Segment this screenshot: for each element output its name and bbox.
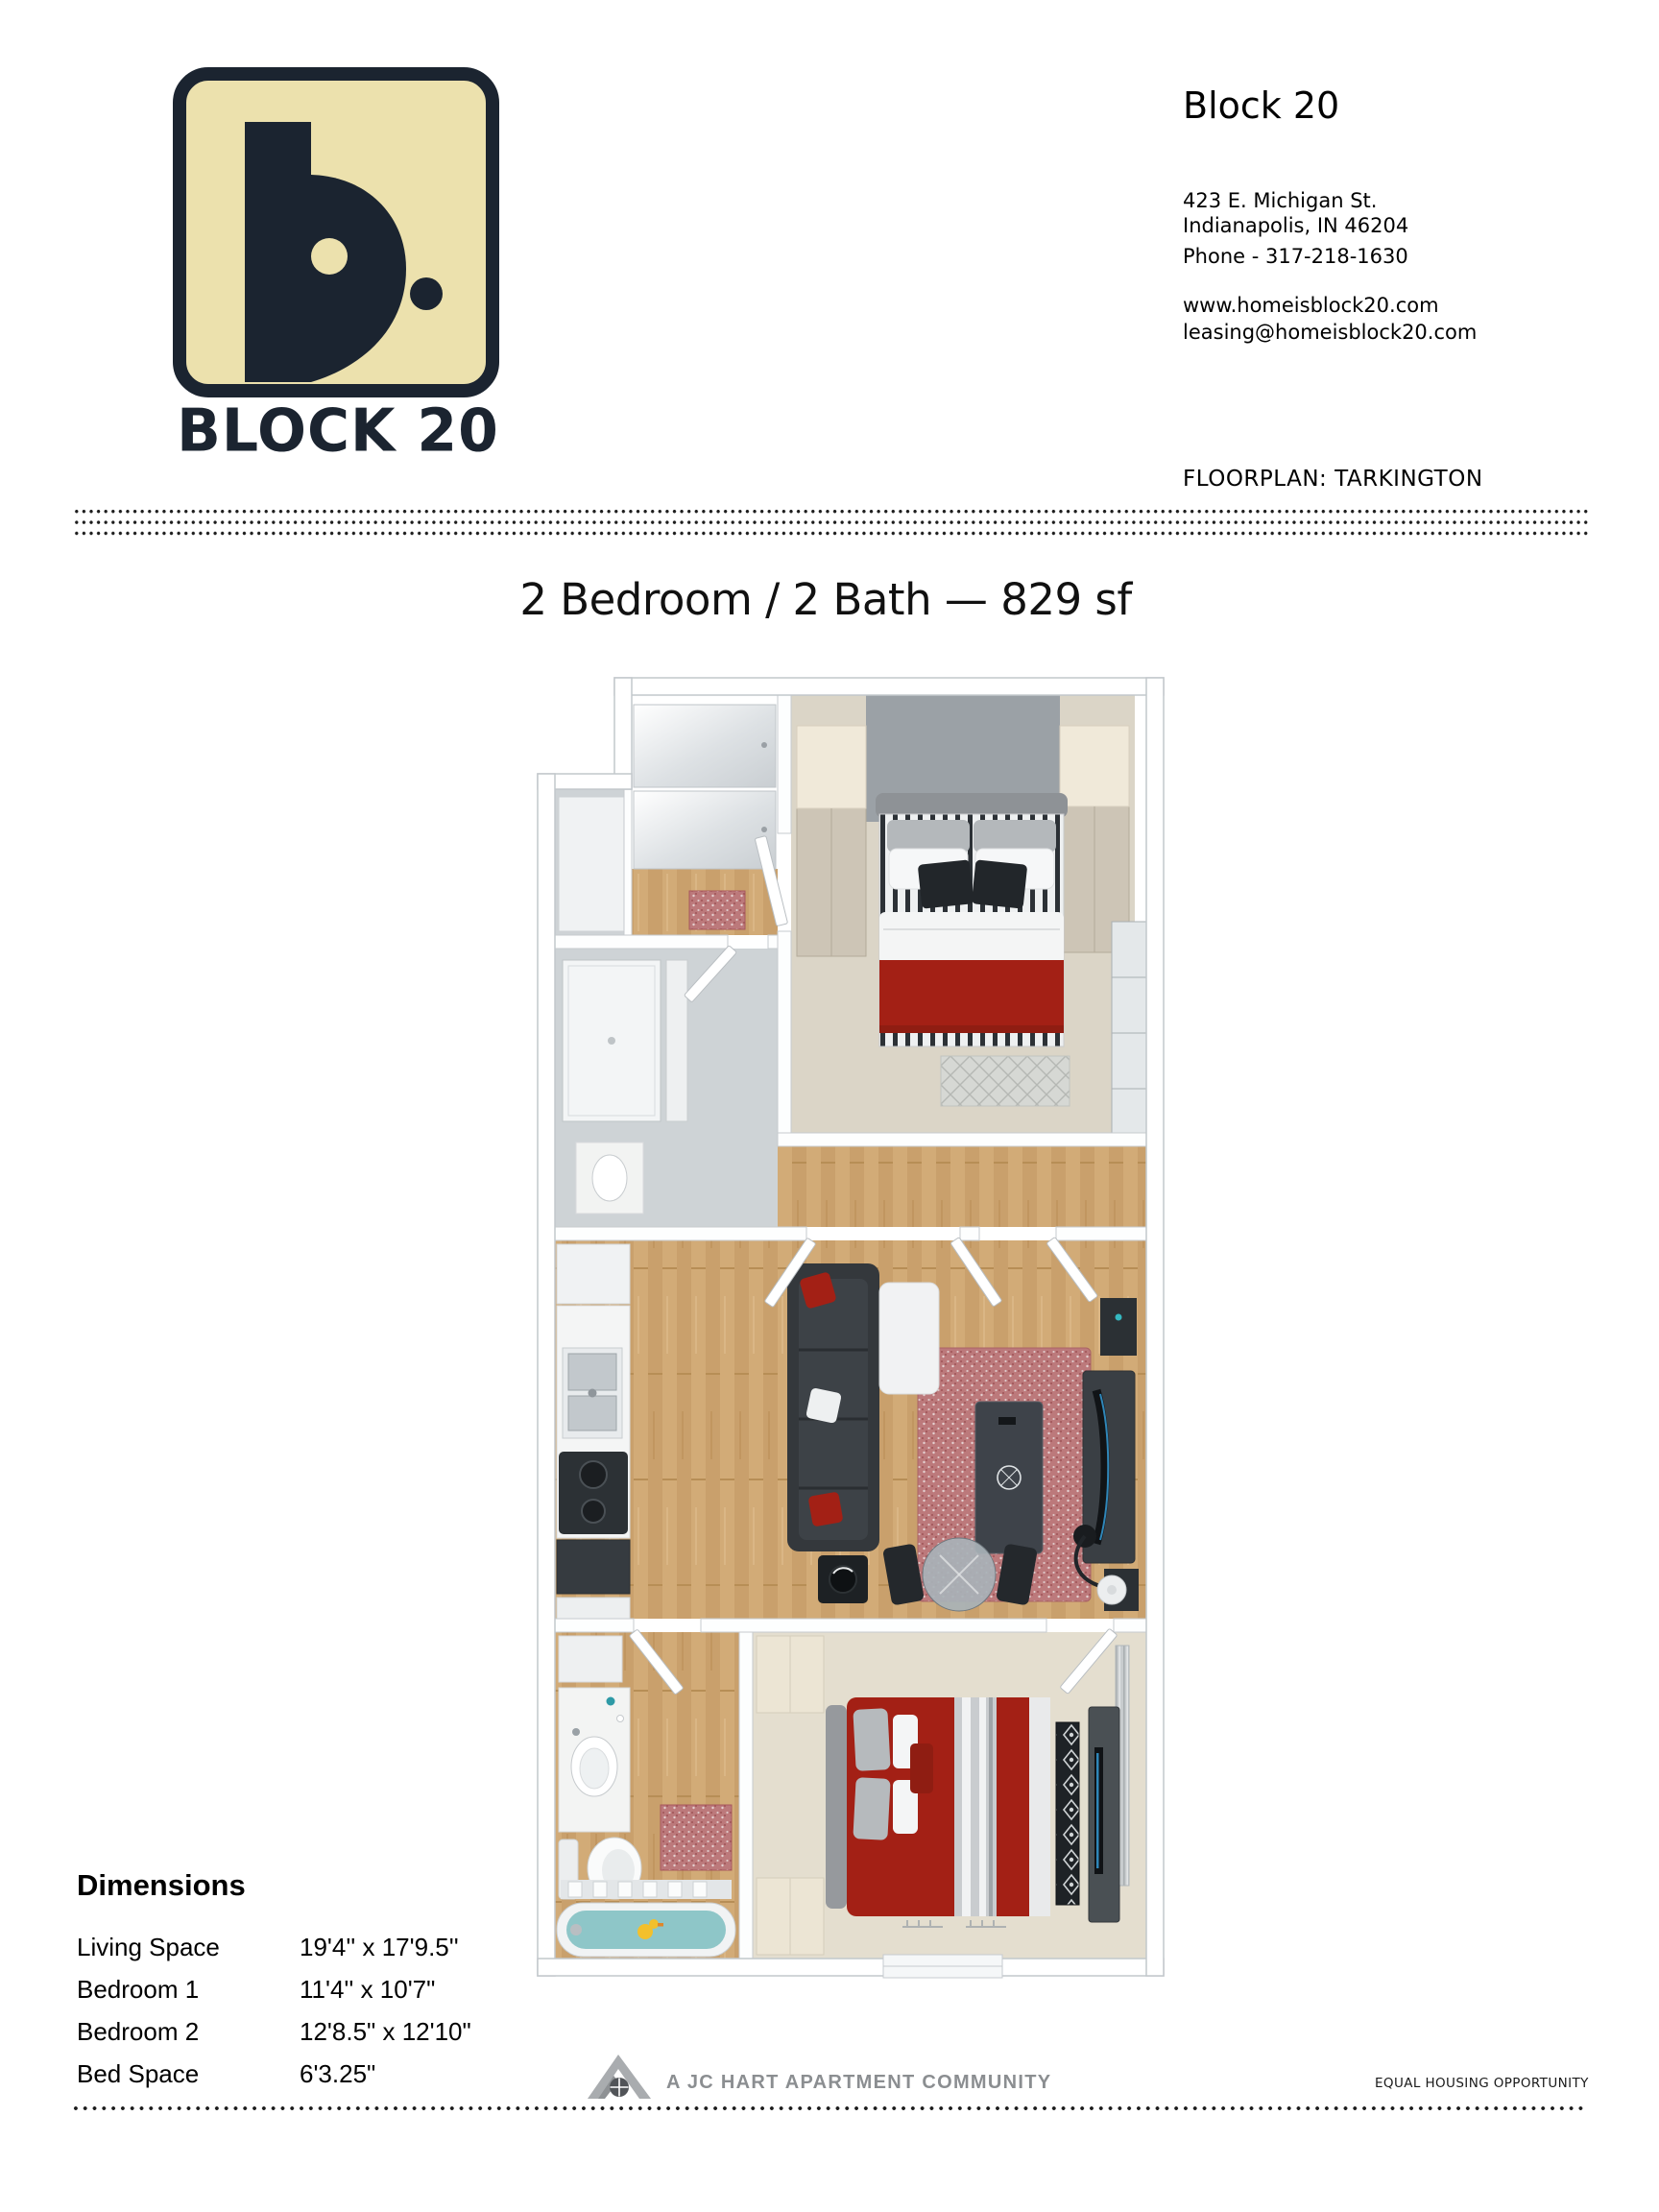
dresser-tv [1089,1707,1119,1922]
dim-value: 6'3.25" [300,2059,375,2089]
jchart-house-icon [586,2047,657,2101]
dimension-row-bedroom2: Bedroom 2 12'8.5" x 12'10" [77,2010,518,2053]
foot-runner [1056,1722,1079,1905]
floorplan-name-label: FLOORPLAN: TARKINGTON [1183,467,1483,492]
fridge [557,1244,630,1304]
bedroom1-rug [941,1056,1070,1106]
bath-rug [661,1805,732,1870]
towel-rack [561,1880,732,1899]
address-line2: Indianapolis, IN 46204 [1183,213,1408,238]
sink [563,1348,622,1438]
website-link[interactable]: www.homeisblock20.com [1183,292,1477,319]
address-block: 423 E. Michigan St. Indianapolis, IN 462… [1183,188,1408,238]
sliding-panel [666,960,687,1121]
community-tagline: A JC HART APARTMENT COMMUNITY [666,2072,1051,2094]
logo-wordmark: BLOCK 20 [169,397,507,465]
coffee-table [975,1402,1043,1553]
dim-value: 19'4'' x 17'9.5'' [300,1933,459,1962]
mirror-closet [1112,922,1146,1142]
floorplan-3d-rendering [518,672,1171,1997]
email-link[interactable]: leasing@homeisblock20.com [1183,319,1477,346]
bathtub [557,1903,735,1957]
page-title: Block 20 [1183,84,1339,127]
dining-set [882,1538,1038,1611]
dimensions-section: Dimensions Living Space 19'4'' x 17'9.5'… [77,1868,518,2095]
contact-block: www.homeisblock20.com leasing@homeisbloc… [1183,292,1477,346]
bathroom-vanity [559,1688,630,1832]
floorplan-flyer-page: BLOCK 20 Block 20 423 E. Michigan St. In… [0,0,1659,2212]
dimension-row-bedroom1: Bedroom 1 11'4'' x 10'7" [77,1968,518,2010]
dim-label: Living Space [77,1933,300,1962]
dim-label: Bedroom 1 [77,1975,300,2005]
phone-line: Phone - 317-218-1630 [1183,244,1408,269]
dim-value: 12'8.5" x 12'10" [300,2017,471,2047]
wardrobe-right [1060,726,1129,952]
dotted-divider-bottom [71,2103,1588,2114]
plan-heading: 2 Bedroom / 2 Bath — 829 sf [461,574,1190,625]
wardrobe-left [797,726,866,956]
kitchen [557,1244,630,1619]
address-line1: 423 E. Michigan St. [1183,188,1408,213]
bedroom2-bed [826,1697,1050,1916]
dimensions-title: Dimensions [77,1868,518,1903]
side-table-lamp [818,1555,868,1603]
dimension-row-living-space: Living Space 19'4'' x 17'9.5'' [77,1926,518,1968]
equal-housing-label: EQUAL HOUSING OPPORTUNITY [1375,2076,1589,2091]
dim-label: Bed Space [77,2059,300,2089]
dimension-row-bed-space: Bed Space 6'3.25" [77,2053,518,2095]
base-cabinet [557,1540,630,1594]
entry-rug [689,891,745,929]
dim-label: Bedroom 2 [77,2017,300,2047]
block20-logo-icon [173,67,499,397]
cooktop [559,1452,628,1534]
dotted-divider-top [73,503,1588,536]
bedroom1-bed [876,793,1068,1046]
dim-value: 11'4'' x 10'7" [300,1975,435,2005]
